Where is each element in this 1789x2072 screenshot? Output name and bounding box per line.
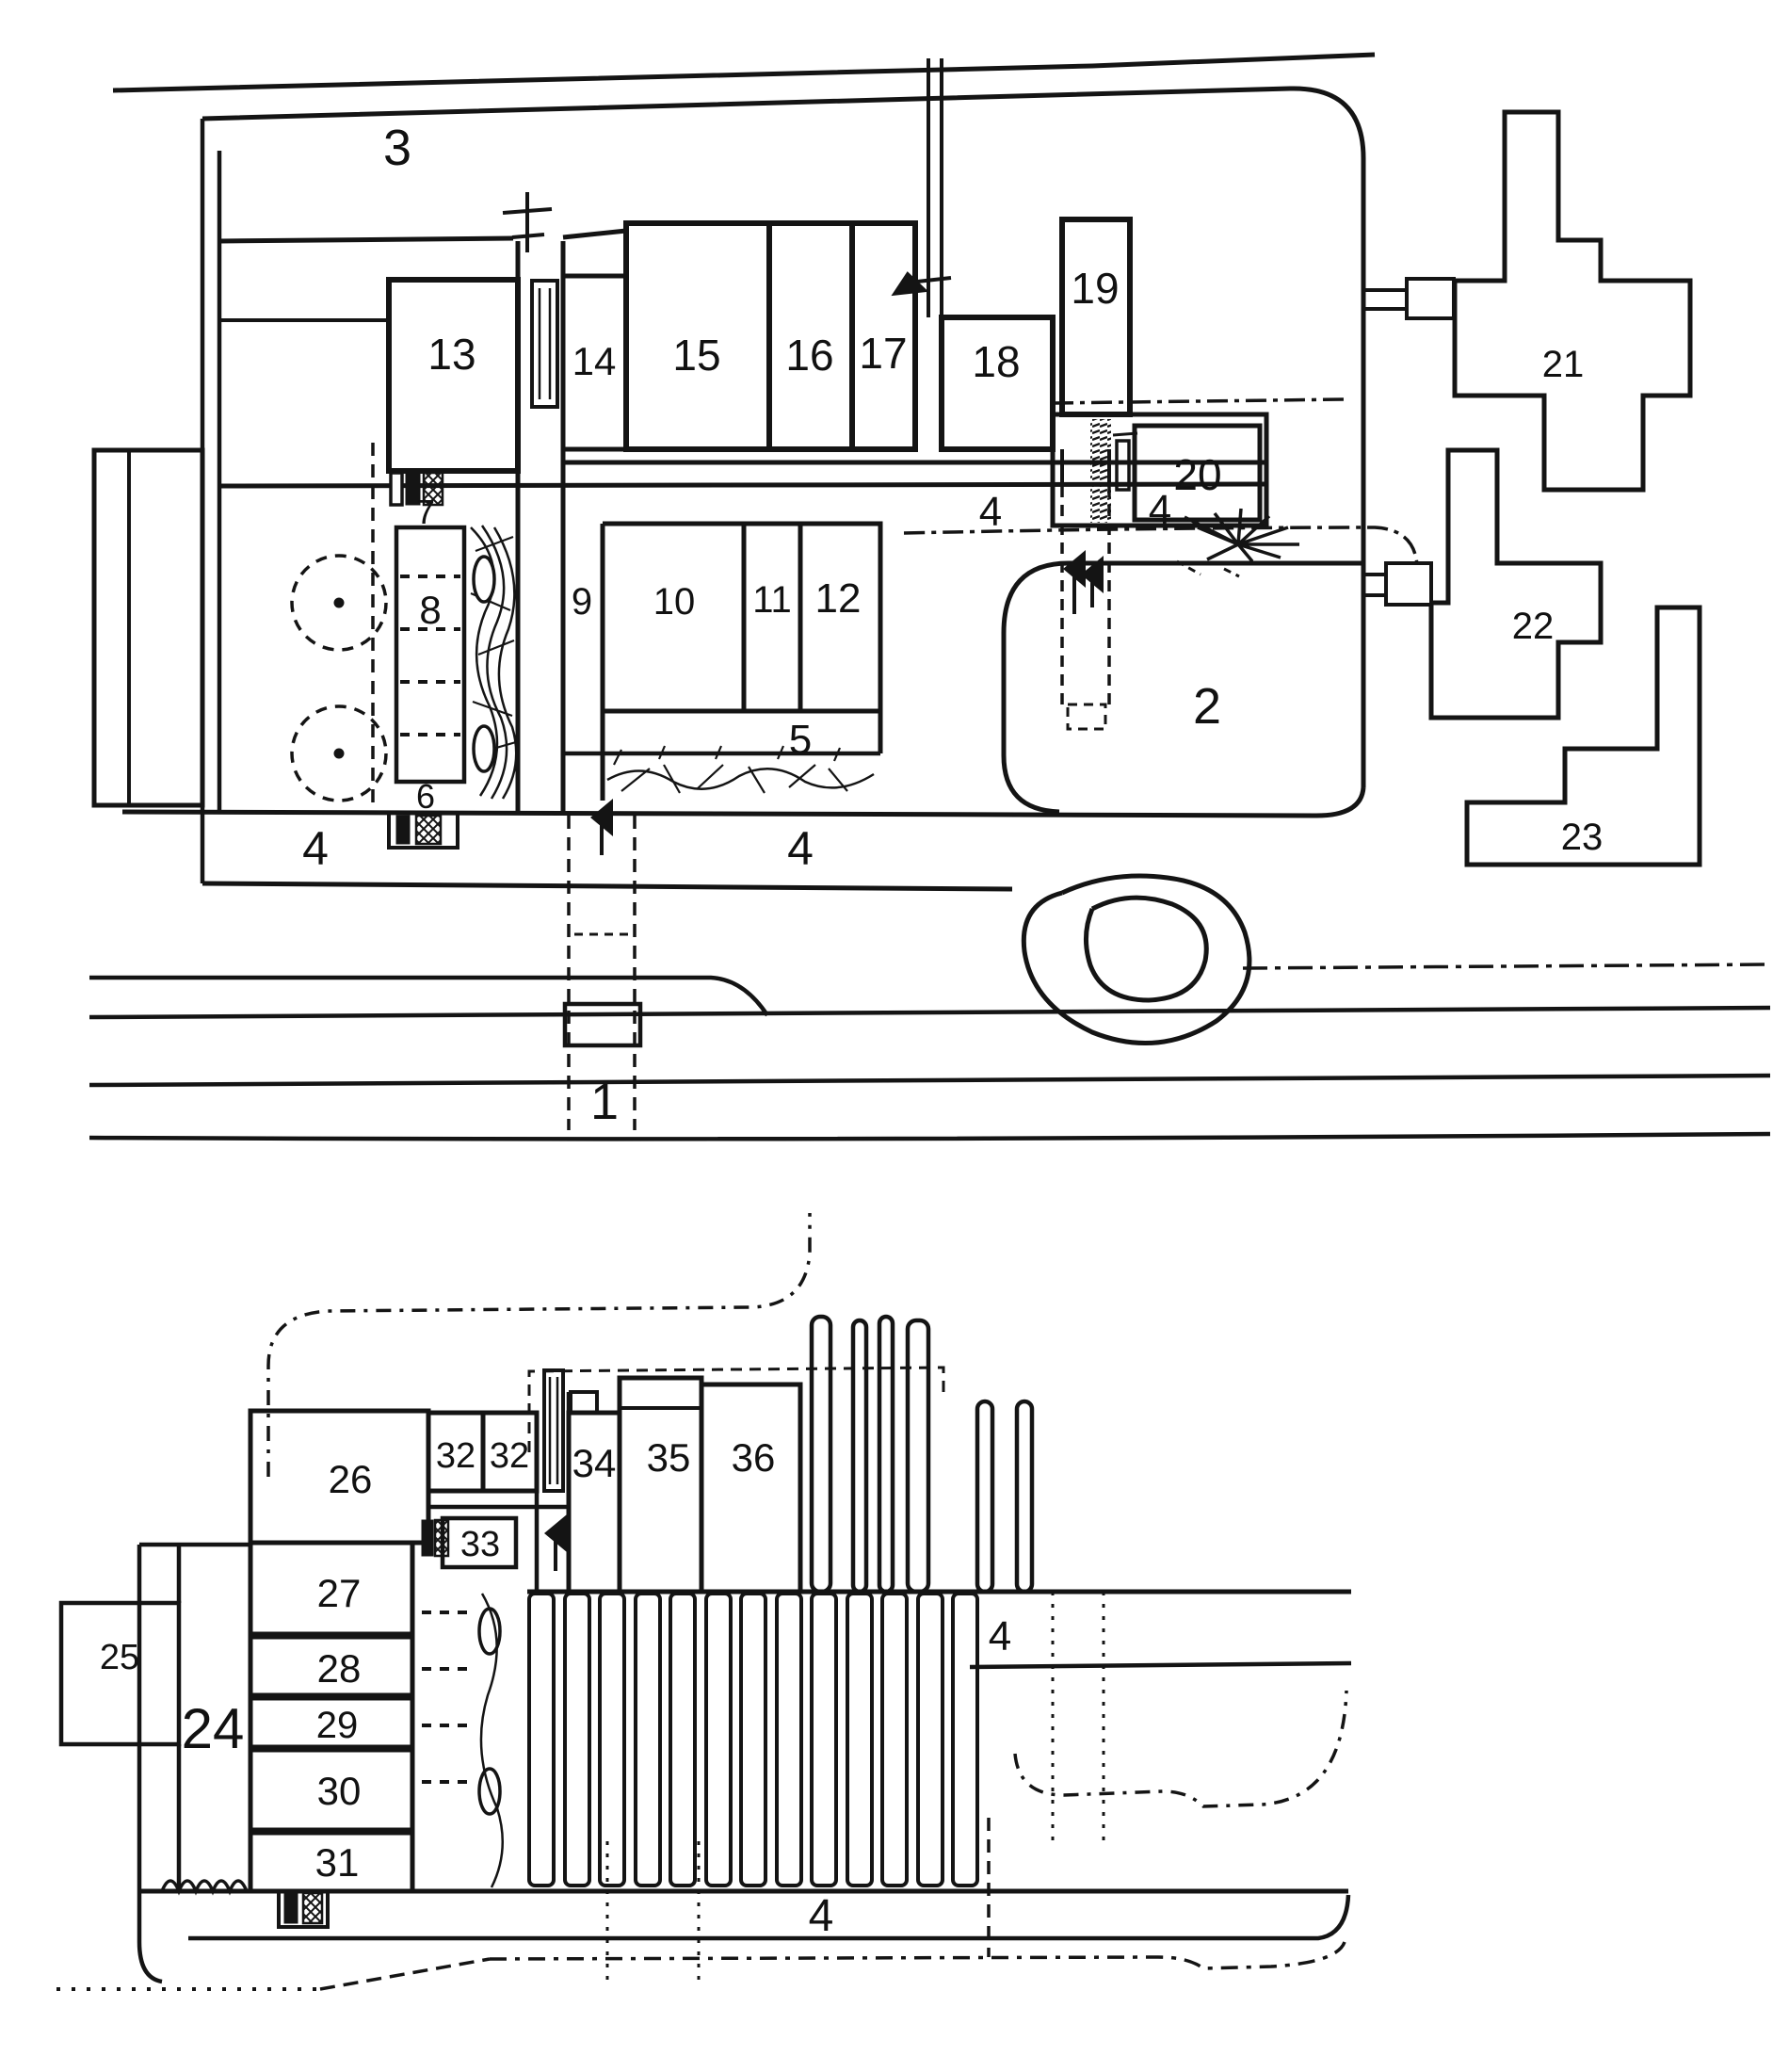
- room-label-31: 31: [315, 1840, 360, 1885]
- tree-trunk-icon: [334, 749, 344, 758]
- building-19: [1062, 219, 1130, 414]
- neighbor-building-21: [1363, 112, 1690, 490]
- shaft-rails: [540, 288, 550, 399]
- room-label-16: 16: [785, 331, 833, 380]
- benchmark-cross-icon: [503, 192, 552, 252]
- building-34: [569, 1413, 620, 1592]
- yard-24: [139, 1545, 250, 1982]
- street-line: [202, 89, 1363, 787]
- shrub-icon: [474, 557, 494, 602]
- area-label-24: 24: [182, 1697, 245, 1760]
- site-plan-svg: 3 13 14 15 16 17 18 19 20 21 22 23 2 4 4…: [0, 0, 1789, 2072]
- room-label-14: 14: [572, 339, 617, 383]
- room-label-32a: 32: [436, 1436, 475, 1476]
- room-label-32b: 32: [490, 1436, 529, 1476]
- street-line: [113, 55, 1375, 90]
- road-label-4-east1: 4: [979, 489, 1002, 535]
- area-label-8: 8: [419, 588, 441, 632]
- building-label-23: 23: [1561, 817, 1604, 858]
- lower-street: [89, 964, 1770, 1139]
- lower-boundary-bottom: [56, 1942, 1345, 1989]
- corridor-end: [1068, 704, 1105, 729]
- building-36: [701, 1384, 800, 1592]
- street-gate: [565, 1004, 640, 1045]
- boundary-dashdot: [1053, 399, 1345, 403]
- fence-line: [219, 238, 513, 241]
- road-line: [122, 812, 1316, 816]
- gate-black: [422, 1520, 433, 1556]
- room-label-12: 12: [815, 575, 862, 622]
- finger-rows-upper: [812, 1317, 1032, 1592]
- room-label-18: 18: [972, 337, 1020, 386]
- room-label-20: 20: [1173, 450, 1221, 499]
- building-34-cap: [571, 1392, 597, 1413]
- west-building: [94, 450, 202, 805]
- room-label-17: 17: [859, 329, 907, 378]
- room-label-29: 29: [316, 1705, 359, 1746]
- gate-hatch: [435, 1520, 448, 1556]
- building-label-22: 22: [1512, 606, 1555, 647]
- lower-boundary-dashed: [268, 1213, 943, 1477]
- door-lintel: [1113, 433, 1137, 435]
- road-label-4-lowerright: 4: [989, 1613, 1011, 1659]
- upper-left-road: [202, 119, 219, 883]
- road-label-4-southwest: 4: [302, 822, 329, 875]
- area-label-9: 9: [572, 581, 592, 623]
- room-label-36: 36: [732, 1435, 776, 1480]
- room-label-13: 13: [427, 330, 475, 379]
- room-label-34: 34: [572, 1441, 617, 1485]
- room-label-11: 11: [752, 579, 792, 621]
- road-line: [202, 883, 1012, 889]
- room-label-15: 15: [672, 331, 720, 380]
- west-building-outline: [94, 450, 202, 805]
- hedge-scribble: [471, 526, 516, 799]
- tree-trunk-icon: [334, 598, 344, 607]
- area-label-7: 7: [416, 493, 435, 531]
- shaft: [544, 1370, 563, 1491]
- shrub-icon: [474, 726, 494, 771]
- street-label-1: 1: [590, 1074, 619, 1130]
- building-label-21: 21: [1542, 344, 1585, 385]
- bridge-to-21: [1363, 279, 1454, 318]
- road-label-4-east2: 4: [1149, 487, 1171, 533]
- road-label-4-south: 4: [787, 822, 814, 875]
- building-35: [620, 1378, 701, 1592]
- gate-at-6: [389, 812, 458, 848]
- area-label-25: 25: [100, 1638, 139, 1677]
- room-label-33: 33: [460, 1525, 500, 1564]
- lower-plan-labels: 26 27 28 29 30 31 32 32 33 34 35 36 24 2…: [100, 1435, 1011, 1941]
- field-rows-comb: [527, 1592, 1351, 1886]
- bridge-to-22: [1363, 563, 1431, 605]
- site-plan-figure: 3 13 14 15 16 17 18 19 20 21 22 23 2 4 4…: [0, 0, 1789, 2072]
- room-label-10: 10: [653, 581, 696, 623]
- area-label-2: 2: [1193, 678, 1221, 735]
- bed-8: [396, 527, 464, 782]
- room-label-30: 30: [317, 1769, 362, 1813]
- room-label-28: 28: [317, 1646, 362, 1691]
- area-label-5: 5: [789, 717, 812, 763]
- shaft: [532, 281, 557, 407]
- road-label-4-lowerbottom: 4: [809, 1891, 834, 1941]
- area-2-boundary: [1004, 563, 1363, 812]
- area-label-6: 6: [416, 777, 435, 816]
- gate-lower: [279, 1891, 328, 1927]
- building-row-north: [389, 58, 1130, 812]
- road-corner: [1316, 787, 1363, 816]
- room-label-27: 27: [317, 1571, 362, 1615]
- planting-west: [292, 443, 516, 810]
- area-label-3: 3: [383, 120, 411, 176]
- room-label-26: 26: [329, 1457, 373, 1501]
- fence-line: [563, 231, 626, 237]
- lower-planting-strip: [422, 1594, 503, 1887]
- turnaround-loop: [1023, 876, 1249, 1044]
- lower-right-road: [970, 1592, 1351, 1957]
- building-row-south: [563, 524, 880, 801]
- room-label-35: 35: [647, 1435, 691, 1480]
- room-label-19: 19: [1071, 264, 1119, 313]
